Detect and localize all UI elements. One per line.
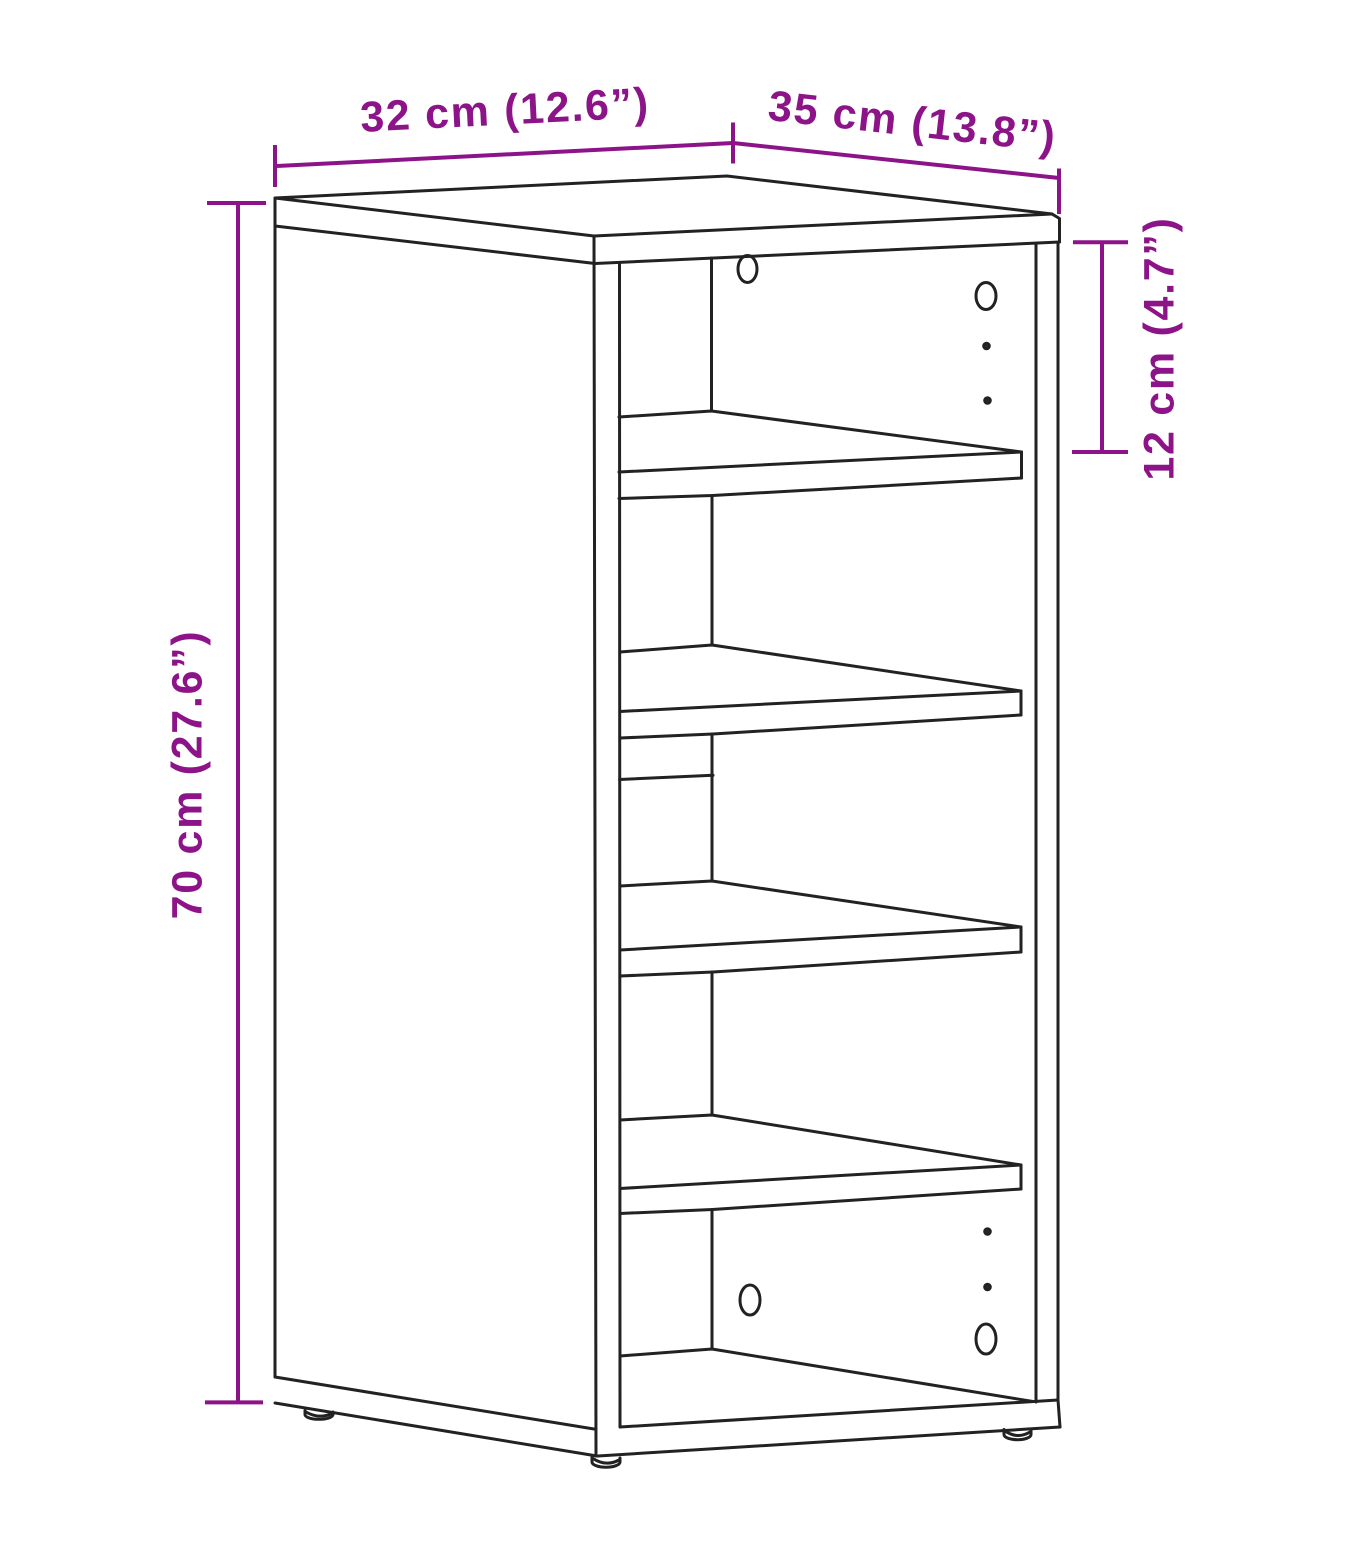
- svg-text:70 cm (27.6”): 70 cm (27.6”): [164, 630, 212, 920]
- svg-text:32 cm (12.6”): 32 cm (12.6”): [359, 79, 651, 142]
- svg-text:12 cm (4.7”): 12 cm (4.7”): [1136, 216, 1184, 480]
